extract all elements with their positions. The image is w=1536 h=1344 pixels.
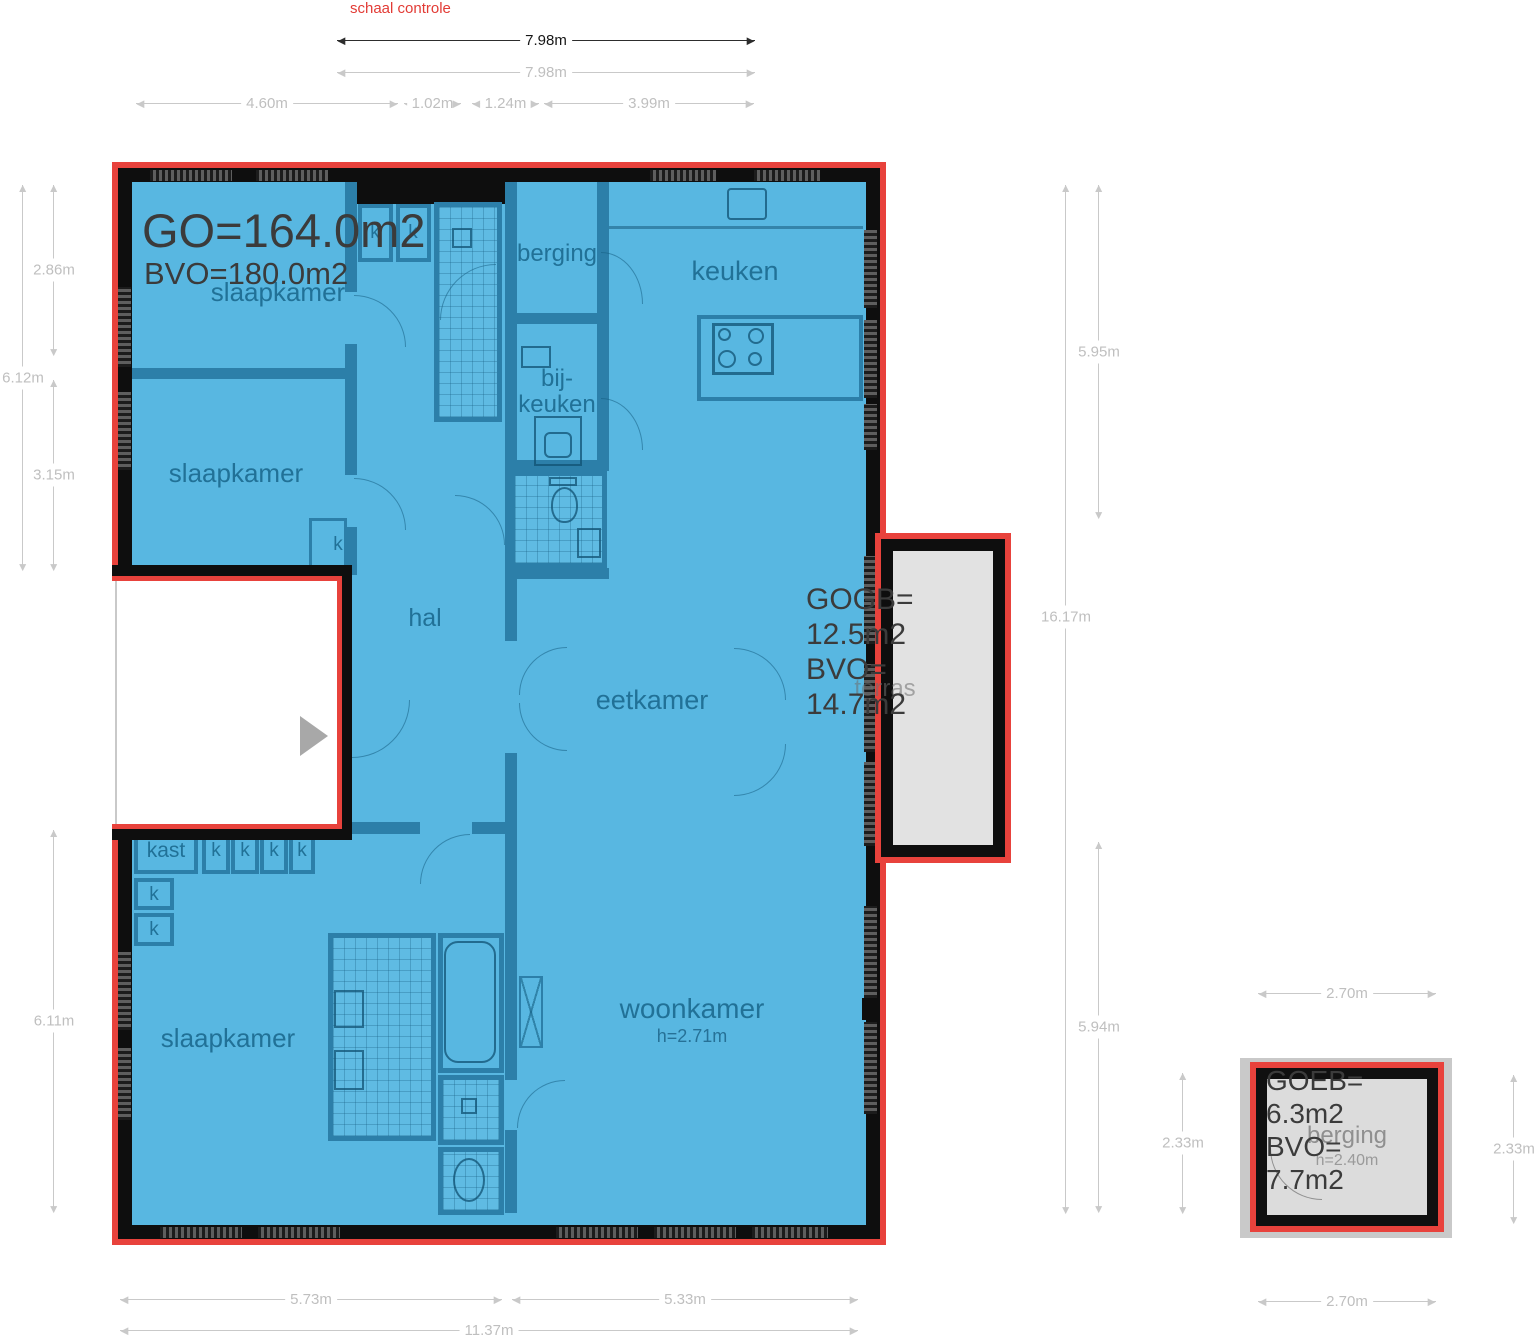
entry-recess-wall	[348, 168, 508, 204]
terras-area-line: 12.5m2	[806, 617, 914, 652]
dim-top: 1.24m	[472, 103, 539, 104]
dim-left: 2.86m	[53, 185, 54, 355]
window	[752, 1227, 828, 1238]
dim-ext-berging-right: 2.33m	[1513, 1075, 1514, 1223]
ext-area-line: BVO=	[1266, 1130, 1363, 1163]
window	[118, 952, 131, 1030]
dim-top: 1.02m	[404, 103, 461, 104]
burner	[718, 328, 731, 341]
room-label-kast: kast	[136, 839, 196, 863]
kitchen-counter-line	[609, 226, 863, 229]
window	[864, 1022, 877, 1114]
room-label-slaapkamer-3: slaapkamer	[128, 1023, 328, 1054]
window	[160, 1227, 242, 1238]
closet-label-k: k	[328, 534, 348, 556]
window	[864, 320, 877, 398]
terras-area-line: BVO=	[806, 652, 914, 687]
window	[650, 170, 716, 181]
door-gap	[505, 1080, 517, 1130]
door-gap	[420, 822, 472, 834]
recess-outside	[112, 581, 337, 824]
shaft	[519, 976, 543, 1048]
dim-top-scale: 7.98m	[337, 40, 755, 41]
kitchen-sink	[727, 188, 767, 220]
burner	[748, 328, 764, 344]
dim-top: 4.60m	[136, 103, 398, 104]
entrance-arrow-icon	[300, 716, 328, 756]
dim-top: 7.98m	[337, 72, 755, 73]
window	[864, 230, 877, 308]
wall-pier	[862, 998, 880, 1020]
dim-ext-berging-bottom: 2.70m	[1258, 1301, 1436, 1302]
dim-left: 3.15m	[53, 380, 54, 570]
room-label-eetkamer: eetkamer	[572, 685, 732, 716]
room-label-hal: hal	[385, 604, 465, 633]
window	[556, 1227, 638, 1238]
partition	[505, 579, 517, 641]
room-label-slaapkamer-2: slaapkamer	[136, 458, 336, 489]
burner	[718, 350, 736, 368]
partition	[505, 753, 517, 822]
ext-area-line: 7.7m2	[1266, 1163, 1363, 1196]
shower-drain	[461, 1098, 477, 1114]
partition	[505, 568, 609, 579]
dim-left: 6.11m	[53, 830, 54, 1212]
window	[118, 1048, 131, 1120]
room-label-bijkeuken-2: keuken	[507, 391, 607, 419]
room-label-keuken: keuken	[660, 256, 810, 287]
dim-bottom: 5.73m	[120, 1299, 502, 1300]
washbasin	[334, 990, 364, 1028]
partition	[132, 368, 347, 379]
partition	[505, 822, 517, 1213]
window	[654, 1227, 736, 1238]
woonkamer-height: h=2.71m	[602, 1026, 782, 1047]
window	[118, 392, 131, 470]
window	[150, 170, 232, 181]
closet-label-k: k	[292, 840, 312, 862]
dim-right: 5.94m	[1098, 842, 1099, 1212]
partition	[505, 313, 609, 324]
recess-threshold-line	[115, 581, 117, 824]
dim-bottom: 11.37m	[120, 1330, 858, 1331]
room-label-woonkamer: woonkamer	[602, 993, 782, 1025]
bathtub	[444, 941, 496, 1063]
window	[864, 906, 877, 998]
dim-bottom: 5.33m	[512, 1299, 858, 1300]
window	[864, 404, 877, 450]
dim-top: 3.99m	[544, 103, 754, 104]
closet-label-k: k	[264, 840, 284, 862]
floorplan-page: schaal controle	[0, 0, 1536, 1344]
closet-label-k: k	[206, 840, 226, 862]
shower-mixer	[452, 228, 472, 248]
dim-right: 16.17m	[1065, 185, 1066, 1213]
terras-area-text: GOGB= 12.5m2 BVO= 14.7m2	[806, 582, 914, 722]
terras-area-line: 14.7m2	[806, 687, 914, 722]
dim-left: 6.12m	[22, 185, 23, 570]
area-go: GO=164.0m2	[142, 203, 425, 258]
area-bvo: BVO=180.0m2	[144, 256, 348, 292]
dim-right: 2.33m	[1182, 1073, 1183, 1213]
burner	[748, 352, 762, 366]
window	[118, 287, 131, 367]
window	[256, 170, 328, 181]
washing-machine-door	[544, 432, 572, 458]
window	[754, 170, 820, 181]
closet-label-k: k	[235, 840, 255, 862]
ext-area-line: 6.3m2	[1266, 1097, 1363, 1130]
toilet-tank	[549, 477, 577, 486]
toilet-bowl	[551, 487, 578, 523]
hand-basin	[577, 528, 601, 558]
closet-label-k: k	[144, 884, 164, 906]
toilet-bowl	[453, 1158, 485, 1202]
bathroom-bottom	[328, 933, 436, 1141]
terras-area-line: GOGB=	[806, 582, 914, 617]
ext-berging-area-text: GOEB= 6.3m2 BVO= 7.7m2	[1266, 1064, 1363, 1196]
window	[258, 1227, 340, 1238]
scale-check-note: schaal controle	[350, 0, 451, 17]
dim-ext-berging-top: 2.70m	[1258, 993, 1436, 994]
room-label-bijkeuken-1: bij-	[507, 365, 607, 393]
room-label-berging: berging	[507, 240, 607, 268]
dim-right: 5.95m	[1098, 185, 1099, 518]
ext-area-line: GOEB=	[1266, 1064, 1363, 1097]
closet-label-k: k	[144, 919, 164, 941]
washbasin	[334, 1050, 364, 1090]
